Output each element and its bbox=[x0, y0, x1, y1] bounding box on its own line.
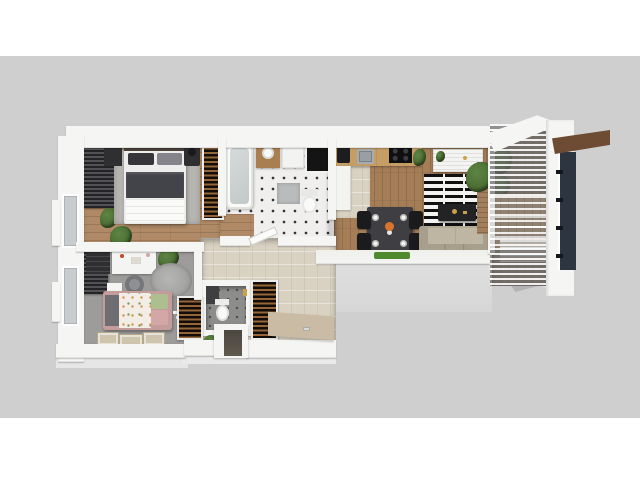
pillow bbox=[151, 294, 168, 309]
desk-item bbox=[132, 258, 140, 263]
plate bbox=[372, 240, 379, 247]
decor-object bbox=[188, 148, 196, 156]
coffee-table bbox=[438, 204, 476, 221]
bathroom-sink bbox=[262, 147, 274, 159]
toilet bbox=[302, 196, 317, 213]
tan-corridor-wall bbox=[268, 312, 334, 341]
window-sill bbox=[52, 282, 60, 322]
north-exterior-wall bbox=[66, 126, 506, 148]
bedroom-bathroom-wall bbox=[218, 138, 226, 216]
coffee-machine bbox=[337, 147, 350, 163]
kitchen-counter-side bbox=[334, 166, 351, 210]
plate bbox=[400, 240, 407, 247]
stove-4-burners bbox=[389, 146, 412, 163]
dining-chair bbox=[357, 233, 371, 251]
toilet bbox=[216, 305, 229, 321]
duvet bbox=[126, 172, 184, 198]
window-sill bbox=[52, 200, 60, 246]
pergola-slats bbox=[490, 248, 552, 286]
panel-bracket bbox=[556, 226, 563, 230]
kids-south-wall bbox=[56, 344, 186, 358]
hall-south-wall bbox=[184, 340, 218, 356]
kids-hall-wall bbox=[194, 250, 202, 300]
rug-stripe-gap bbox=[443, 174, 445, 232]
bath-mat bbox=[277, 183, 300, 204]
shoe-cabinet bbox=[177, 296, 203, 340]
gold-fixture bbox=[243, 289, 247, 296]
desk-item bbox=[120, 254, 124, 258]
pillow bbox=[128, 153, 154, 165]
desk-item bbox=[146, 253, 150, 257]
rug-stripe-gap bbox=[463, 174, 465, 232]
south-facade-living bbox=[318, 258, 492, 312]
bedroom-window bbox=[62, 194, 79, 248]
bedroom-kids-wall bbox=[76, 242, 204, 252]
polka-dot-blanket bbox=[119, 293, 151, 328]
decor-object bbox=[452, 209, 457, 214]
pillow bbox=[157, 153, 182, 165]
pillow bbox=[151, 310, 168, 325]
floor-plan-render bbox=[0, 0, 640, 480]
folded-sheet bbox=[126, 199, 184, 222]
toilet-tank bbox=[301, 189, 318, 196]
kitchen-sink bbox=[357, 149, 374, 164]
pergola-slats bbox=[490, 196, 552, 248]
plate bbox=[400, 214, 407, 221]
plate bbox=[372, 214, 379, 221]
blanket bbox=[105, 295, 119, 326]
nightstand bbox=[104, 146, 122, 166]
decor-object bbox=[463, 156, 467, 160]
entrance-doorway bbox=[224, 330, 242, 356]
bathtub-basin bbox=[230, 148, 249, 204]
panel-bracket bbox=[556, 198, 563, 202]
panel-bracket bbox=[556, 170, 563, 174]
planter-box bbox=[374, 252, 410, 259]
centerpiece bbox=[385, 222, 394, 231]
bathroom-south-wall bbox=[278, 236, 336, 246]
decor-object bbox=[463, 211, 467, 214]
kids-window bbox=[62, 266, 79, 326]
dining-chair bbox=[357, 211, 371, 229]
sofa-cushion bbox=[428, 228, 455, 245]
panel-bracket bbox=[556, 254, 563, 258]
bathroom-south-wall bbox=[220, 236, 250, 246]
wall-switch bbox=[303, 327, 310, 331]
hall-south-wall bbox=[246, 340, 336, 358]
bathroom-kitchen-wall bbox=[328, 138, 336, 220]
